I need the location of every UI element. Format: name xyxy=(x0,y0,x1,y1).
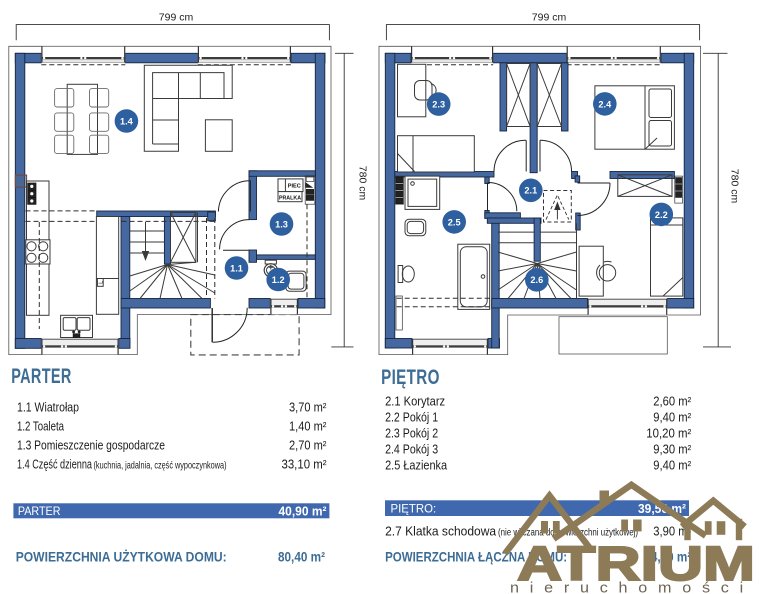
svg-text:1.2 Toaleta: 1.2 Toaleta xyxy=(17,420,64,434)
svg-text:799 cm: 799 cm xyxy=(532,12,567,24)
svg-text:2,60 m²: 2,60 m² xyxy=(653,395,691,409)
svg-text:nieruchomości: nieruchomości xyxy=(510,580,754,594)
svg-text:40,90 m²: 40,90 m² xyxy=(279,504,327,518)
svg-text:PARTER: PARTER xyxy=(18,504,61,518)
svg-text:2.1: 2.1 xyxy=(524,186,537,196)
svg-text:2.3 Pokój 2: 2.3 Pokój 2 xyxy=(385,427,438,441)
svg-text:799 cm: 799 cm xyxy=(159,12,194,24)
svg-text:2.2: 2.2 xyxy=(655,210,668,220)
svg-text:1.1 Wiatrołap: 1.1 Wiatrołap xyxy=(17,401,79,415)
svg-text:10,20 m²: 10,20 m² xyxy=(646,427,691,441)
svg-text:1.3 Pomieszczenie gospodarcze: 1.3 Pomieszczenie gospodarcze xyxy=(17,439,165,453)
svg-text:2.4: 2.4 xyxy=(598,99,612,109)
svg-text:PRALKA: PRALKA xyxy=(279,195,301,201)
svg-text:780 cm: 780 cm xyxy=(357,166,369,201)
svg-text:2.7 Klatka schodowa: 2.7 Klatka schodowa xyxy=(385,525,496,539)
svg-text:2,70 m²: 2,70 m² xyxy=(289,439,327,453)
svg-text:1,40 m²: 1,40 m² xyxy=(289,420,327,434)
svg-text:2.6: 2.6 xyxy=(530,275,543,285)
svg-text:9,40 m²: 9,40 m² xyxy=(653,411,691,425)
svg-text:PIĘTRO:: PIĘTRO: xyxy=(391,502,437,516)
svg-text:2.5: 2.5 xyxy=(448,217,461,227)
svg-text:33,10 m²: 33,10 m² xyxy=(282,458,327,472)
svg-text:3,70 m²: 3,70 m² xyxy=(289,401,327,415)
svg-text:2.3: 2.3 xyxy=(432,100,445,110)
svg-text:PIEC: PIEC xyxy=(288,183,301,189)
svg-text:80,40 m²: 80,40 m² xyxy=(278,550,325,565)
svg-text:2.2 Pokój 1: 2.2 Pokój 1 xyxy=(385,411,438,425)
svg-text:PARTER: PARTER xyxy=(11,365,71,388)
svg-text:2.1 Korytarz: 2.1 Korytarz xyxy=(385,395,445,409)
svg-text:2.5 Łazienka: 2.5 Łazienka xyxy=(385,459,447,473)
svg-text:1.4 Część dzienna: 1.4 Część dzienna xyxy=(17,458,92,472)
svg-text:2.4 Pokój 3: 2.4 Pokój 3 xyxy=(385,443,438,457)
svg-text:POWIERZCHNIA UŻYTKOWA DOMU:: POWIERZCHNIA UŻYTKOWA DOMU: xyxy=(16,550,227,565)
svg-text:(kuchnia, jadalnia, część wypo: (kuchnia, jadalnia, część wypoczynkowa) xyxy=(94,461,227,472)
svg-text:1.3: 1.3 xyxy=(275,219,288,229)
svg-text:9,40 m²: 9,40 m² xyxy=(653,459,691,473)
svg-text:PIĘTRO: PIĘTRO xyxy=(381,366,440,389)
svg-text:9,30 m²: 9,30 m² xyxy=(653,443,691,457)
svg-text:1.4: 1.4 xyxy=(120,116,134,126)
svg-text:780 cm: 780 cm xyxy=(729,169,741,204)
svg-text:1.2: 1.2 xyxy=(272,275,285,285)
svg-text:1.1: 1.1 xyxy=(230,263,243,273)
svg-text:L: L xyxy=(99,281,105,284)
